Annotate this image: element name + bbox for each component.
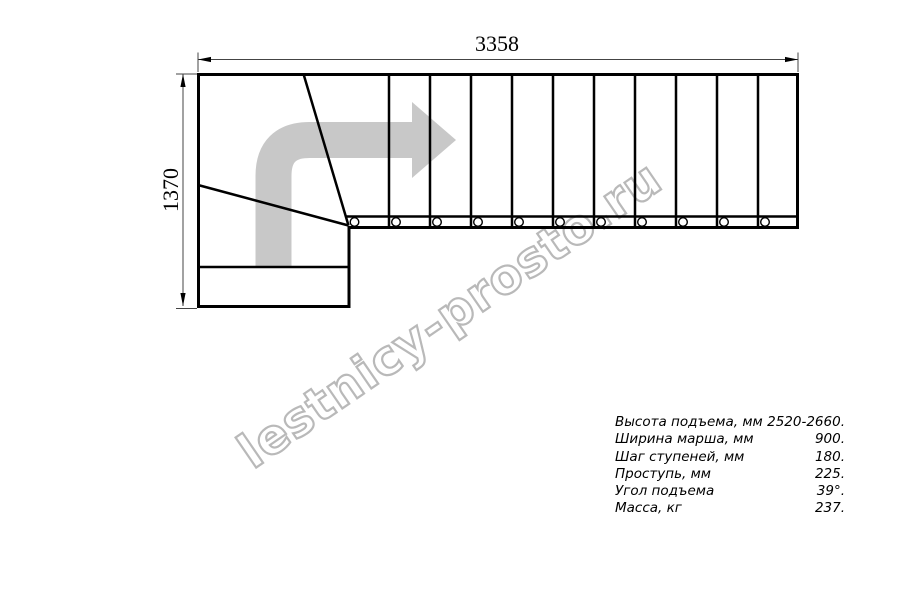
spec-label: Шаг ступеней, мм	[615, 449, 744, 466]
spec-value: 237.	[815, 500, 845, 517]
spec-row-height: Высота подъема, мм 2520-2660.	[615, 414, 845, 431]
baluster-circle	[720, 218, 729, 227]
dimension-width-label: 3358	[447, 31, 547, 57]
spec-value: 225.	[815, 466, 845, 483]
spec-label: Проступь, мм	[615, 466, 711, 483]
stair-outline	[199, 75, 798, 307]
dim-arrowhead-left	[198, 57, 211, 62]
specs-table: Высота подъема, мм 2520-2660. Ширина мар…	[615, 414, 845, 518]
baluster-circle	[597, 218, 606, 227]
spec-value: 39°.	[817, 483, 845, 500]
spec-value: 900.	[815, 431, 845, 448]
baluster-circle	[515, 218, 524, 227]
winder-edge-shallow	[198, 185, 349, 226]
dimension-lines	[176, 53, 798, 309]
spec-label: Ширина марша, мм	[615, 431, 754, 448]
spec-row-flight-width: Ширина марша, мм 900.	[615, 431, 845, 448]
spec-row-tread-depth: Проступь, мм 225.	[615, 466, 845, 483]
baluster-circle	[556, 218, 565, 227]
spec-row-angle: Угол подъема 39°.	[615, 483, 845, 500]
tread-dividers	[389, 74, 758, 227]
dimension-height-label: 1370	[158, 140, 180, 240]
spec-row-mass: Масса, кг 237.	[615, 500, 845, 517]
staircase-drawing-canvas: lestnicy-prosto.ru	[0, 0, 900, 600]
spec-row-step-rise: Шаг ступеней, мм 180.	[615, 449, 845, 466]
baluster-circle	[433, 218, 442, 227]
dim-arrowhead-right	[785, 57, 798, 62]
baluster-circles	[350, 218, 769, 227]
spec-value: 2520-2660.	[767, 414, 845, 431]
dim-arrowhead-bottom	[180, 293, 185, 306]
spec-value: 180.	[815, 449, 845, 466]
winder-edge-steep	[304, 74, 349, 226]
baluster-circle	[474, 218, 483, 227]
baluster-circle	[392, 218, 401, 227]
baluster-circle	[679, 218, 688, 227]
spec-label: Масса, кг	[615, 500, 682, 517]
dim-arrowhead-top	[180, 74, 185, 87]
spec-label: Высота подъема, мм	[615, 414, 763, 431]
spec-label: Угол подъема	[615, 483, 714, 500]
baluster-circle	[761, 218, 770, 227]
baluster-circle	[350, 218, 359, 227]
baluster-circle	[638, 218, 647, 227]
stair-plan-outline-group	[198, 74, 798, 307]
